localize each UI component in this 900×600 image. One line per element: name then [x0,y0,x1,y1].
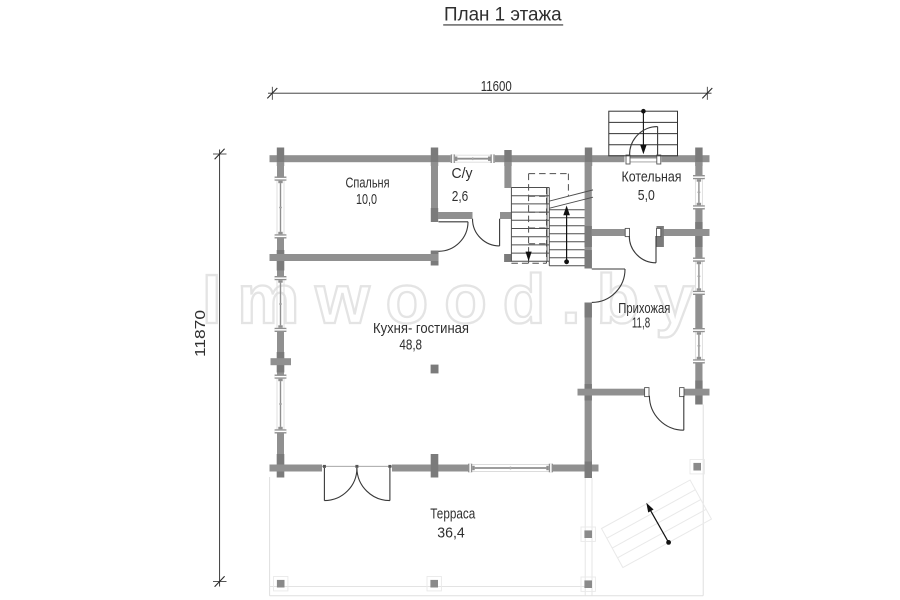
svg-text:С/у: С/у [452,165,473,182]
svg-text:11,8: 11,8 [632,315,650,332]
svg-text:5,0: 5,0 [638,187,655,204]
svg-text:Котельная: Котельная [622,169,682,186]
svg-text:Спальня: Спальня [346,175,390,192]
svg-text:Кухня- гостиная: Кухня- гостиная [373,320,469,337]
svg-text:36,4: 36,4 [437,525,465,542]
svg-text:2,6: 2,6 [452,188,469,205]
svg-text:11870: 11870 [192,310,209,357]
svg-text:48,8: 48,8 [399,337,422,354]
svg-text:План 1 этажа: План 1 этажа [444,5,562,26]
svg-text:11600: 11600 [481,78,512,95]
svg-text:Терраса: Терраса [430,506,476,523]
svg-text:10,0: 10,0 [356,191,377,208]
